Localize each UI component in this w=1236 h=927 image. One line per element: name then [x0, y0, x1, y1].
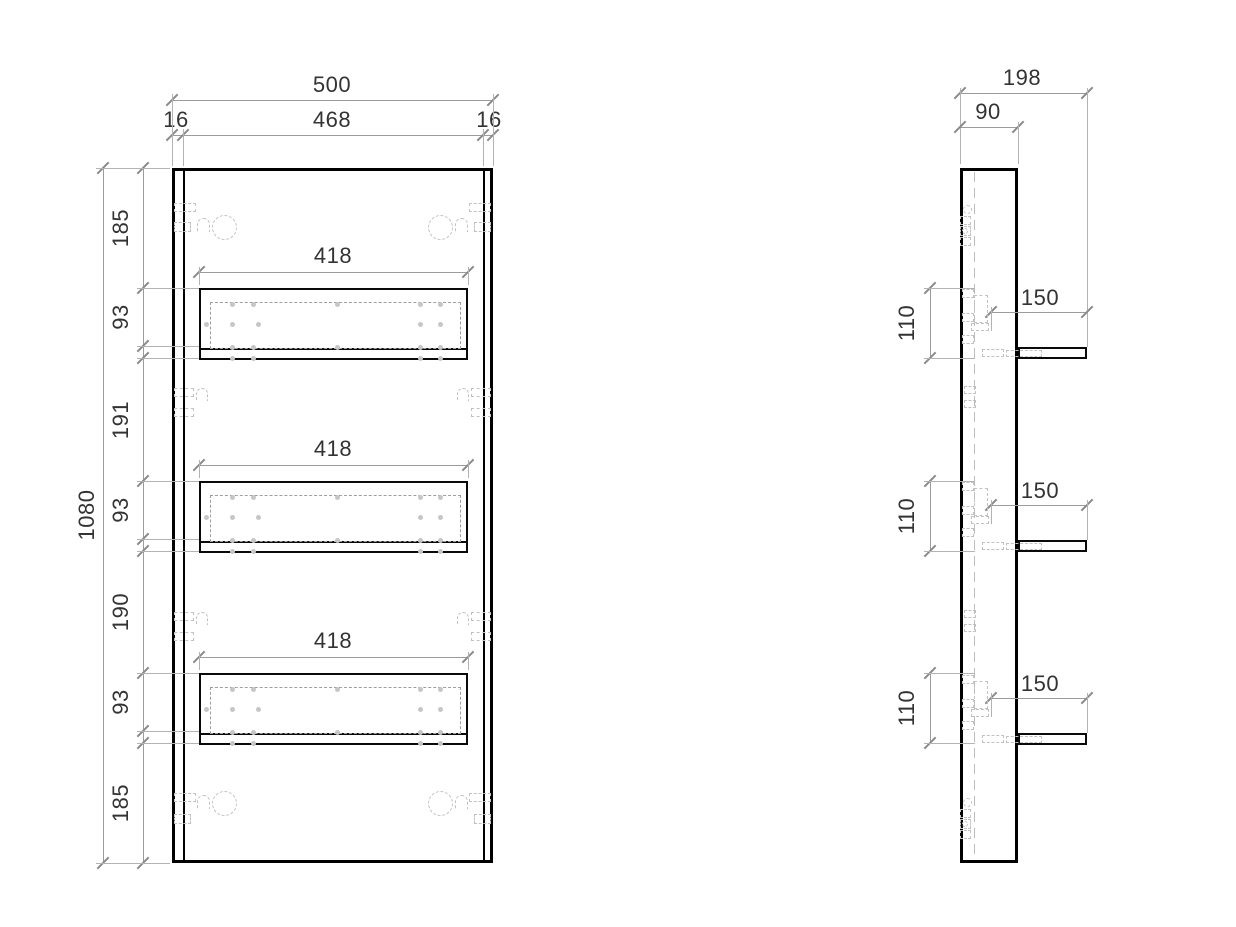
dim-module-height-1-label: 110	[894, 305, 920, 342]
hanger-bracket	[174, 388, 194, 397]
dim-module-height-3-line	[930, 673, 931, 743]
dim-segment-label: 191	[108, 401, 134, 439]
extension-line	[468, 267, 469, 285]
hardware-detail	[963, 205, 972, 214]
dim-shelf-length-1-label: 418	[314, 243, 352, 269]
left-side-wall-line	[183, 168, 185, 863]
dim-segment-label: 93	[108, 497, 134, 522]
hardware-detail	[974, 681, 988, 709]
extension-line	[137, 743, 199, 744]
extension-line	[199, 652, 200, 670]
dim-right-thickness-label: 16	[476, 107, 501, 133]
hook-detail	[197, 795, 210, 809]
hanger-bracket	[471, 408, 491, 417]
hanger-bracket	[174, 632, 194, 641]
dim-segment-label: 185	[108, 784, 134, 822]
technical-drawing-canvas: 500 16 468 16 418 418 418	[0, 0, 1236, 927]
hook-detail	[196, 388, 208, 401]
hardware-detail	[964, 610, 976, 618]
extension-line	[137, 539, 199, 540]
dim-height-chain-line	[143, 168, 144, 863]
hardware-detail	[962, 699, 974, 708]
hanger-bracket	[471, 612, 491, 621]
extension-line	[199, 267, 200, 285]
screw-detail	[982, 349, 1004, 357]
shelf-hidden-outline	[210, 302, 461, 349]
screw-detail	[1006, 736, 1042, 743]
shelf-module-1	[199, 288, 468, 360]
dim-overall-depth-label: 198	[1003, 65, 1041, 91]
hardware-detail	[974, 488, 988, 516]
dim-module-height-2-label: 110	[894, 498, 920, 535]
extension-line	[137, 346, 199, 347]
hardware-detail	[962, 482, 974, 491]
shelf-hidden-outline	[210, 687, 461, 734]
hanger-bracket	[174, 793, 196, 802]
extension-line	[96, 168, 170, 169]
hardware-detail	[964, 624, 976, 632]
screw-detail	[1006, 543, 1042, 550]
hanger-bracket	[174, 203, 196, 212]
extension-line	[137, 288, 199, 289]
dim-overall-width-label: 500	[313, 72, 351, 98]
hanger-bracket	[174, 612, 194, 621]
dim-overall-height-line	[103, 168, 104, 863]
shelf-hidden-outline	[210, 495, 461, 542]
extension-line	[137, 481, 199, 482]
extension-line	[96, 863, 170, 864]
camlock-circle	[212, 791, 237, 816]
hardware-detail	[962, 721, 974, 730]
dim-panel-depth-line	[960, 127, 1018, 128]
hanger-bracket	[474, 222, 491, 232]
hardware-detail	[962, 289, 974, 298]
hardware-detail	[971, 709, 989, 717]
hardware-detail	[971, 516, 989, 524]
extension-line	[924, 551, 975, 552]
right-side-wall-line	[483, 168, 485, 863]
hanger-bracket	[474, 814, 491, 824]
extension-line	[1087, 500, 1088, 540]
hanger-bracket	[471, 632, 491, 641]
extension-line	[183, 129, 184, 166]
fastener-holes	[230, 687, 235, 692]
hardware-detail	[962, 228, 968, 234]
dim-overall-width-line	[172, 100, 493, 101]
hook-detail	[457, 612, 469, 625]
hanger-bracket	[174, 408, 194, 417]
dim-shelf-length-2-line	[199, 465, 468, 466]
extension-line	[1087, 693, 1088, 733]
dim-overall-height-label: 1080	[74, 490, 100, 541]
hardware-detail	[963, 798, 972, 807]
extension-line	[172, 94, 173, 166]
fastener-holes	[230, 495, 235, 500]
hardware-detail	[962, 313, 974, 322]
dim-module-height-2-line	[930, 481, 931, 551]
hardware-detail	[962, 675, 974, 684]
extension-line	[483, 129, 484, 166]
extension-line	[991, 307, 992, 331]
side-panel-outline	[960, 168, 1018, 863]
extension-line	[991, 500, 992, 524]
dim-left-thickness-label: 16	[163, 107, 188, 133]
dim-segment-label: 185	[108, 209, 134, 247]
extension-line	[199, 460, 200, 478]
dim-overall-depth-line	[960, 93, 1087, 94]
screw-detail	[982, 735, 1004, 743]
hardware-detail	[962, 335, 974, 344]
extension-line	[137, 731, 199, 732]
camlock-circle	[212, 215, 237, 240]
shelf-module-3	[199, 673, 468, 745]
dim-shelf-depth-3-line	[991, 698, 1087, 699]
extension-line	[493, 94, 494, 166]
screw-detail	[982, 542, 1004, 550]
hardware-detail	[971, 323, 989, 331]
hanger-bracket	[469, 203, 491, 212]
hanger-bracket	[469, 793, 491, 802]
fastener-holes	[230, 302, 235, 307]
extension-line	[924, 743, 975, 744]
dim-inner-width-label: 468	[313, 107, 351, 133]
dim-shelf-length-3-line	[199, 657, 468, 658]
extension-line	[1018, 122, 1019, 164]
hardware-detail	[962, 821, 968, 827]
shelf-module-2	[199, 481, 468, 553]
hanger-bracket	[174, 814, 191, 824]
hook-detail	[455, 795, 468, 809]
hardware-detail	[964, 400, 976, 408]
hook-detail	[457, 388, 469, 401]
hardware-detail	[974, 295, 988, 323]
hanger-bracket	[471, 388, 491, 397]
camlock-circle	[428, 215, 453, 240]
dim-shelf-depth-2-label: 150	[1021, 478, 1059, 504]
dim-module-height-3-label: 110	[894, 690, 920, 727]
hardware-detail	[964, 386, 976, 394]
extension-line	[137, 551, 199, 552]
hanger-bracket	[174, 222, 191, 232]
hardware-detail	[960, 237, 971, 246]
extension-line	[468, 652, 469, 670]
extension-line	[137, 358, 199, 359]
camlock-circle	[428, 791, 453, 816]
screw-detail	[1006, 350, 1042, 357]
hook-detail	[197, 218, 210, 232]
dim-shelf-length-2-label: 418	[314, 436, 352, 462]
dim-shelf-length-3-label: 418	[314, 628, 352, 654]
extension-line	[137, 673, 199, 674]
extension-line	[924, 358, 975, 359]
hook-detail	[196, 612, 208, 625]
dim-segment-label: 93	[108, 304, 134, 329]
hardware-detail	[962, 506, 974, 515]
extension-line	[468, 460, 469, 478]
dim-segment-label: 93	[108, 689, 134, 714]
hardware-detail	[962, 528, 974, 537]
dim-shelf-depth-3-label: 150	[1021, 671, 1059, 697]
dim-segment-label: 190	[108, 593, 134, 631]
extension-line	[924, 673, 975, 674]
dim-inner-width-line	[172, 135, 493, 136]
dim-shelf-depth-1-label: 150	[1021, 285, 1059, 311]
dim-shelf-depth-2-line	[991, 505, 1087, 506]
hardware-detail	[960, 216, 971, 225]
hardware-detail	[960, 830, 971, 839]
dim-shelf-length-1-line	[199, 272, 468, 273]
hook-detail	[455, 218, 468, 232]
dim-shelf-depth-1-line	[991, 312, 1087, 313]
dim-module-height-1-line	[930, 288, 931, 358]
extension-line	[991, 693, 992, 717]
dim-panel-depth-label: 90	[975, 99, 1000, 125]
hardware-detail	[960, 809, 971, 818]
